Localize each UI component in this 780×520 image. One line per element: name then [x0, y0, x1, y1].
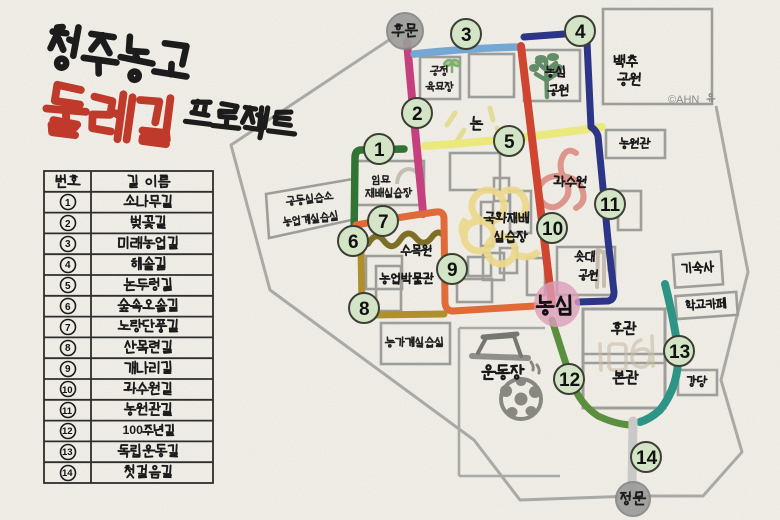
- svg-text:3: 3: [461, 25, 472, 46]
- svg-text:14: 14: [636, 448, 658, 469]
- svg-text:14: 14: [62, 468, 73, 479]
- svg-text:13: 13: [62, 447, 73, 458]
- svg-text:8: 8: [65, 343, 71, 354]
- svg-text:13: 13: [669, 342, 690, 363]
- svg-text:9: 9: [447, 260, 458, 281]
- svg-text:5: 5: [504, 132, 515, 153]
- svg-text:11: 11: [62, 406, 73, 417]
- svg-text:7: 7: [378, 212, 389, 233]
- svg-text:10: 10: [542, 219, 563, 240]
- svg-text:10: 10: [62, 385, 73, 396]
- svg-text:©AHN: ©AHN: [668, 94, 699, 106]
- svg-text:4: 4: [575, 22, 586, 43]
- svg-text:12: 12: [559, 370, 580, 391]
- svg-text:12: 12: [62, 426, 73, 437]
- svg-text:3: 3: [65, 239, 71, 250]
- svg-text:1: 1: [65, 198, 71, 209]
- svg-text:8: 8: [359, 299, 370, 320]
- svg-text:4: 4: [65, 260, 71, 271]
- svg-text:5: 5: [65, 281, 71, 292]
- svg-text:7: 7: [65, 323, 71, 334]
- svg-text:9: 9: [65, 364, 71, 375]
- svg-text:11: 11: [600, 195, 621, 216]
- svg-text:1: 1: [374, 140, 385, 161]
- svg-text:2: 2: [412, 104, 423, 125]
- svg-text:6: 6: [348, 232, 359, 253]
- svg-text:2: 2: [65, 219, 71, 230]
- svg-text:0: 0: [136, 423, 143, 437]
- svg-text:6: 6: [65, 302, 71, 313]
